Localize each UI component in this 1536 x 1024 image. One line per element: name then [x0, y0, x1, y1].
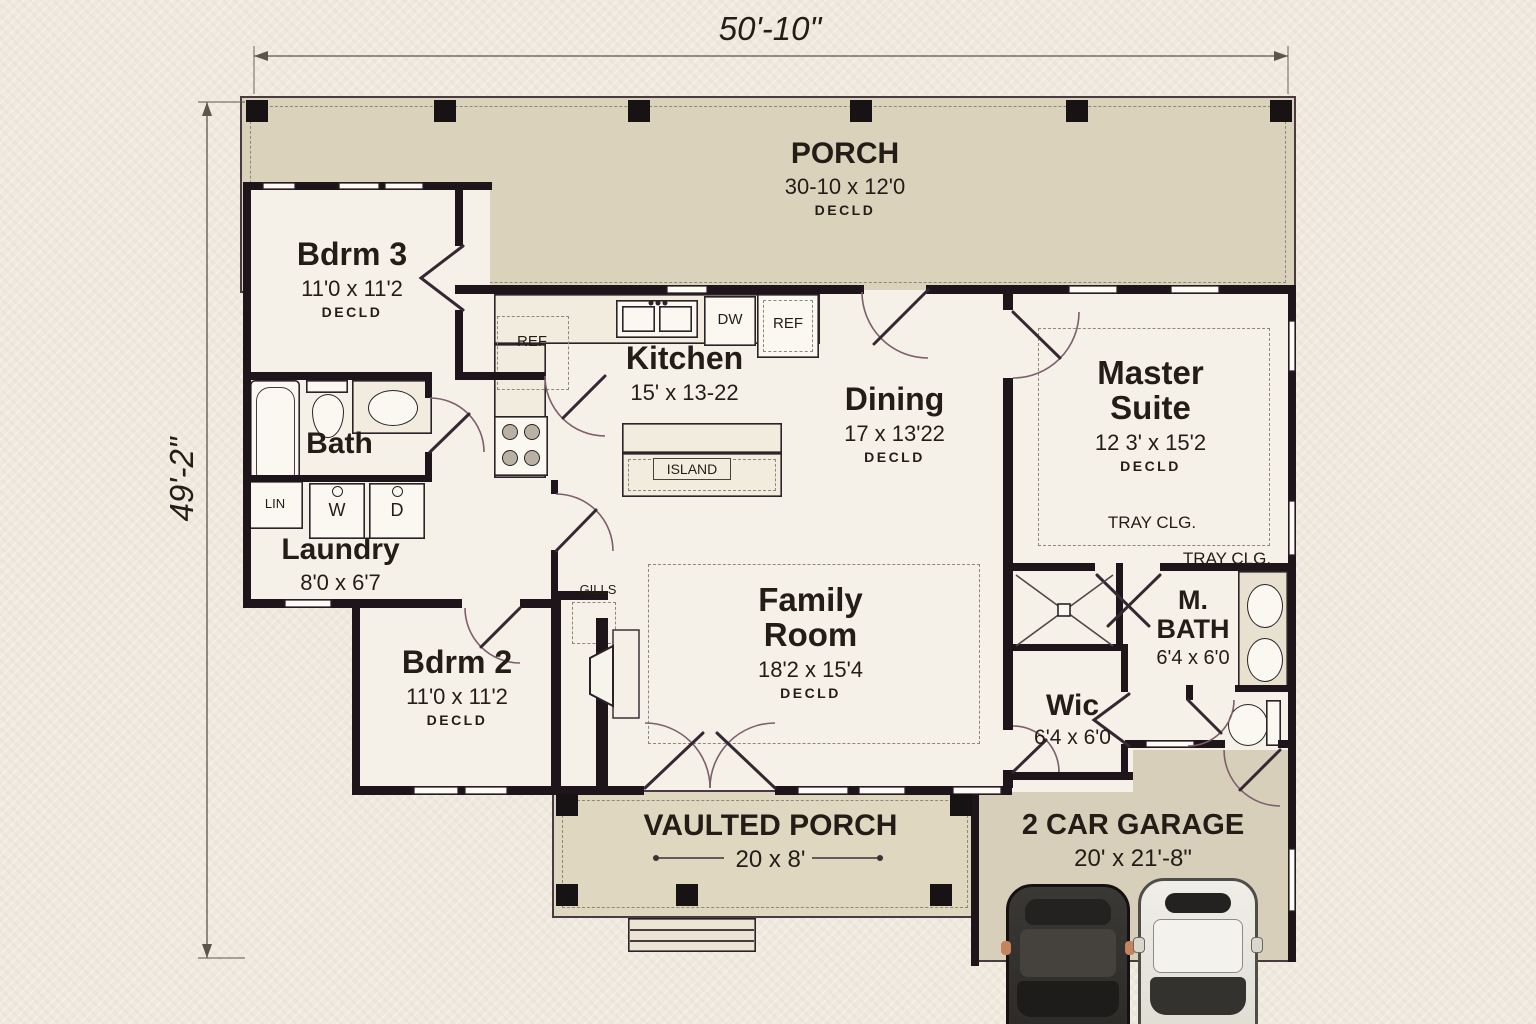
wall [243, 475, 432, 482]
room-label-dining: Dining 17 x 13'22 DECLD [797, 383, 992, 465]
window [464, 786, 508, 795]
wall [425, 452, 432, 482]
burner [524, 450, 540, 466]
wall [243, 182, 251, 607]
room-name: Wic [1015, 690, 1130, 722]
room-size: 11'0 x 11'2 [252, 277, 452, 300]
window [1288, 848, 1296, 912]
window [284, 599, 332, 608]
room-label-mbath: M. BATH 6'4 x 6'0 [1138, 586, 1248, 669]
vporch-column [556, 794, 578, 816]
room-size: 18'2 x 15'4 [728, 658, 893, 681]
wall [1013, 644, 1123, 651]
room-size: 12 3' x 15'2 [1058, 431, 1243, 454]
room-size: 20 x 8' [618, 847, 923, 872]
washer-knob [332, 486, 343, 497]
kitchen-island-top [622, 423, 782, 453]
wall [1003, 772, 1133, 780]
room-name: Bdrm 2 [357, 646, 557, 680]
wall [455, 310, 463, 380]
room-label-laundry: Laundry 8'0 x 6'7 [258, 534, 423, 594]
mbath-sink [1247, 584, 1283, 628]
room-size: 11'0 x 11'2 [357, 685, 557, 708]
room-label-bath: Bath [282, 428, 397, 460]
kitchen-sink-basin [659, 306, 692, 332]
wall [1121, 644, 1128, 692]
wall [1003, 560, 1013, 730]
dimension-left: 49'-2" [165, 397, 200, 562]
wall [1003, 285, 1013, 310]
dw-label: DW [704, 312, 756, 327]
car-rear-window [1025, 899, 1111, 925]
range [494, 416, 548, 476]
lin-label: LIN [249, 497, 301, 510]
wall [243, 372, 432, 380]
toilet-tank [306, 380, 348, 393]
room-name: Dining [797, 383, 992, 417]
dryer-knob [392, 486, 403, 497]
dryer-label: D [371, 501, 423, 519]
window [1145, 740, 1195, 748]
wall [1003, 378, 1013, 570]
car-windshield [1150, 977, 1246, 1015]
car-roof [1153, 919, 1243, 973]
room-size: 8'0 x 6'7 [258, 571, 423, 594]
step-line [630, 940, 754, 942]
wall [1195, 740, 1225, 748]
step-line [630, 929, 754, 931]
window [413, 786, 459, 795]
porch-column [434, 100, 456, 122]
porch-column [1066, 100, 1088, 122]
room-label-wic: Wic 6'4 x 6'0 [1015, 690, 1130, 749]
pantry-ref-label: REF [500, 334, 564, 349]
room-size: 20' x 21'-8" [988, 846, 1278, 871]
room-note: DECLD [700, 203, 990, 218]
room-size: 6'4 x 6'0 [1015, 727, 1130, 749]
front-steps [628, 918, 756, 952]
room-label-bdrm2: Bdrm 2 11'0 x 11'2 DECLD [357, 646, 557, 728]
porch-column [1270, 100, 1292, 122]
room-name: Bdrm 3 [252, 238, 452, 272]
room-note: DECLD [797, 450, 992, 465]
room-label-garage: 2 CAR GARAGE 20' x 21'-8" [988, 810, 1278, 871]
room-name: 2 CAR GARAGE [988, 810, 1278, 841]
car-roof [1020, 929, 1116, 977]
wall [1121, 744, 1128, 780]
wall [971, 786, 979, 966]
wall [551, 480, 558, 494]
room-name: Kitchen [582, 342, 787, 376]
room-name: Laundry [258, 534, 423, 566]
wall [352, 599, 462, 608]
car-dark [1006, 884, 1130, 1024]
kitchen-sink-basin [622, 306, 655, 332]
vporch-column [556, 884, 578, 906]
window [384, 182, 424, 190]
washer-label: W [311, 501, 363, 519]
room-note: DECLD [252, 305, 452, 320]
room-label-master: Master Suite 12 3' x 15'2 DECLD [1058, 356, 1243, 474]
wall [455, 372, 545, 380]
porch-column [850, 100, 872, 122]
porch-column [246, 100, 268, 122]
vporch-column [676, 884, 698, 906]
vporch-column [950, 794, 972, 816]
room-name: PORCH [700, 138, 990, 170]
gills-chase-dashed [572, 602, 616, 644]
window [858, 786, 906, 795]
porch-column [628, 100, 650, 122]
car-mirror [1001, 941, 1011, 955]
room-size: 6'4 x 6'0 [1138, 648, 1248, 669]
tray-clg-label-master: TRAY CLG. [1092, 514, 1212, 531]
window [338, 182, 380, 190]
room-label-vporch: VAULTED PORCH 20 x 8' [618, 810, 923, 872]
burner [502, 424, 518, 440]
island-label: ISLAND [653, 458, 731, 480]
car-mirror [1133, 937, 1145, 953]
wall [1116, 563, 1123, 651]
window [797, 786, 849, 795]
window [1288, 320, 1296, 372]
window [666, 285, 708, 294]
car-mirror [1251, 937, 1263, 953]
room-name: M. BATH [1138, 586, 1248, 643]
wall [1235, 685, 1292, 692]
car-windshield [1017, 981, 1119, 1017]
car-white [1138, 878, 1258, 1024]
gills-label: GILLS [570, 583, 626, 596]
room-label-family: Family Room 18'2 x 15'4 DECLD [728, 583, 893, 701]
room-name: Family Room [728, 583, 893, 653]
window [1288, 500, 1296, 556]
wall [455, 285, 864, 294]
mbath-sink [1247, 638, 1283, 682]
wall [596, 618, 608, 790]
window [262, 182, 296, 190]
burner [524, 424, 540, 440]
floor-plan: 50'-10" 49'-2" PORCH 30-10 x 12'0 DECLD … [0, 0, 1536, 1024]
room-name: Master Suite [1058, 356, 1243, 426]
wall [1003, 770, 1013, 788]
room-name: Bath [282, 428, 397, 460]
room-size: 15' x 13-22 [582, 381, 787, 404]
mbath-toilet-bowl [1228, 704, 1268, 746]
wall [425, 372, 432, 398]
room-label-bdrm3: Bdrm 3 11'0 x 11'2 DECLD [252, 238, 452, 320]
tray-clg-label-hall: TRAY CLG. [1162, 550, 1292, 567]
burner [502, 450, 518, 466]
wall [455, 182, 463, 246]
bath-sink [368, 390, 418, 426]
wall [1013, 563, 1095, 571]
wall [1186, 685, 1193, 700]
dimension-top: 50'-10" [640, 12, 900, 47]
room-label-porch: PORCH 30-10 x 12'0 DECLD [700, 138, 990, 218]
window [1170, 285, 1220, 294]
room-name: VAULTED PORCH [618, 810, 923, 842]
room-size: 30-10 x 12'0 [700, 175, 990, 198]
room-label-kitchen: Kitchen 15' x 13-22 [582, 342, 787, 404]
car-sunroof [1165, 893, 1231, 913]
vporch-column [930, 884, 952, 906]
room-note: DECLD [728, 686, 893, 701]
window [1068, 285, 1118, 294]
room-size: 17 x 13'22 [797, 422, 992, 445]
room-note: DECLD [1058, 459, 1243, 474]
ref-label: REF [757, 316, 819, 331]
room-note: DECLD [357, 713, 557, 728]
